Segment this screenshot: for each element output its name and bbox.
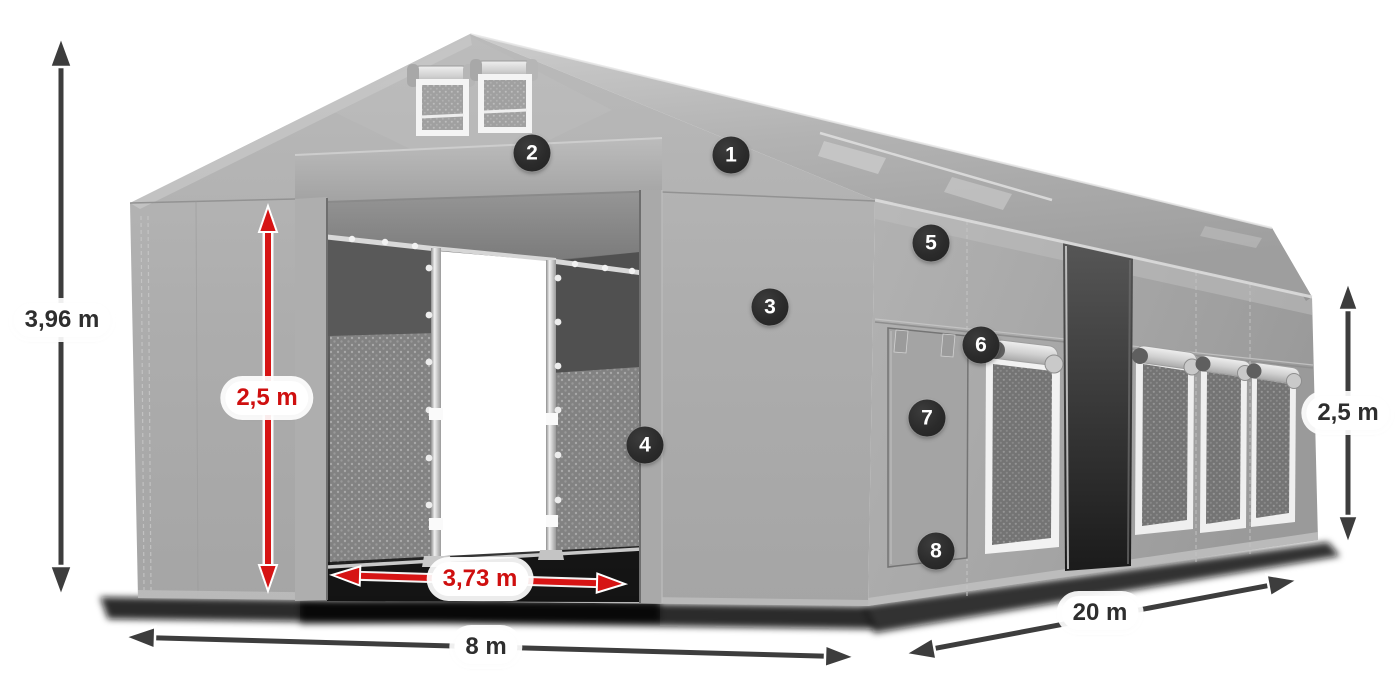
interior-pole bbox=[546, 260, 556, 556]
interior-mesh-panel bbox=[552, 367, 640, 552]
side-door bbox=[888, 328, 968, 567]
callout-badge-1: 1 bbox=[713, 137, 750, 174]
width-label: 8 m bbox=[454, 630, 517, 664]
callout-badge-4: 4 bbox=[627, 427, 664, 464]
vent-window bbox=[419, 82, 466, 133]
callout-badge-3: 3 bbox=[752, 289, 789, 326]
front-wall-height-label: 2,5 m bbox=[225, 381, 308, 415]
callout-badge-8: 8 bbox=[918, 533, 955, 570]
side-sliding-door-opening bbox=[1063, 243, 1133, 571]
side-window-front bbox=[985, 339, 1063, 554]
tent-dimension-diagram: 1 2 3 4 5 6 7 8 3,96 m 2,5 m 3,73 m 8 m … bbox=[0, 0, 1400, 700]
interior-pole bbox=[431, 248, 441, 562]
callout-badge-7: 7 bbox=[909, 400, 946, 437]
side-windows-back bbox=[1132, 345, 1302, 535]
total-height-label: 3,96 m bbox=[14, 303, 111, 337]
callout-badge-6: 6 bbox=[963, 327, 1000, 364]
entrance-width-label: 3,73 m bbox=[432, 562, 529, 596]
interior-mesh-panel bbox=[330, 333, 437, 568]
entrance-post-right bbox=[640, 190, 662, 603]
vent-window bbox=[481, 77, 529, 130]
callout-badge-5: 5 bbox=[913, 225, 950, 262]
callout-badge-2: 2 bbox=[514, 135, 551, 172]
length-label: 20 m bbox=[1062, 596, 1139, 630]
entrance-opening bbox=[327, 189, 643, 602]
tent-illustration bbox=[0, 0, 1400, 700]
side-wall-height-label: 2,5 m bbox=[1306, 396, 1389, 430]
open-passage bbox=[437, 251, 552, 561]
